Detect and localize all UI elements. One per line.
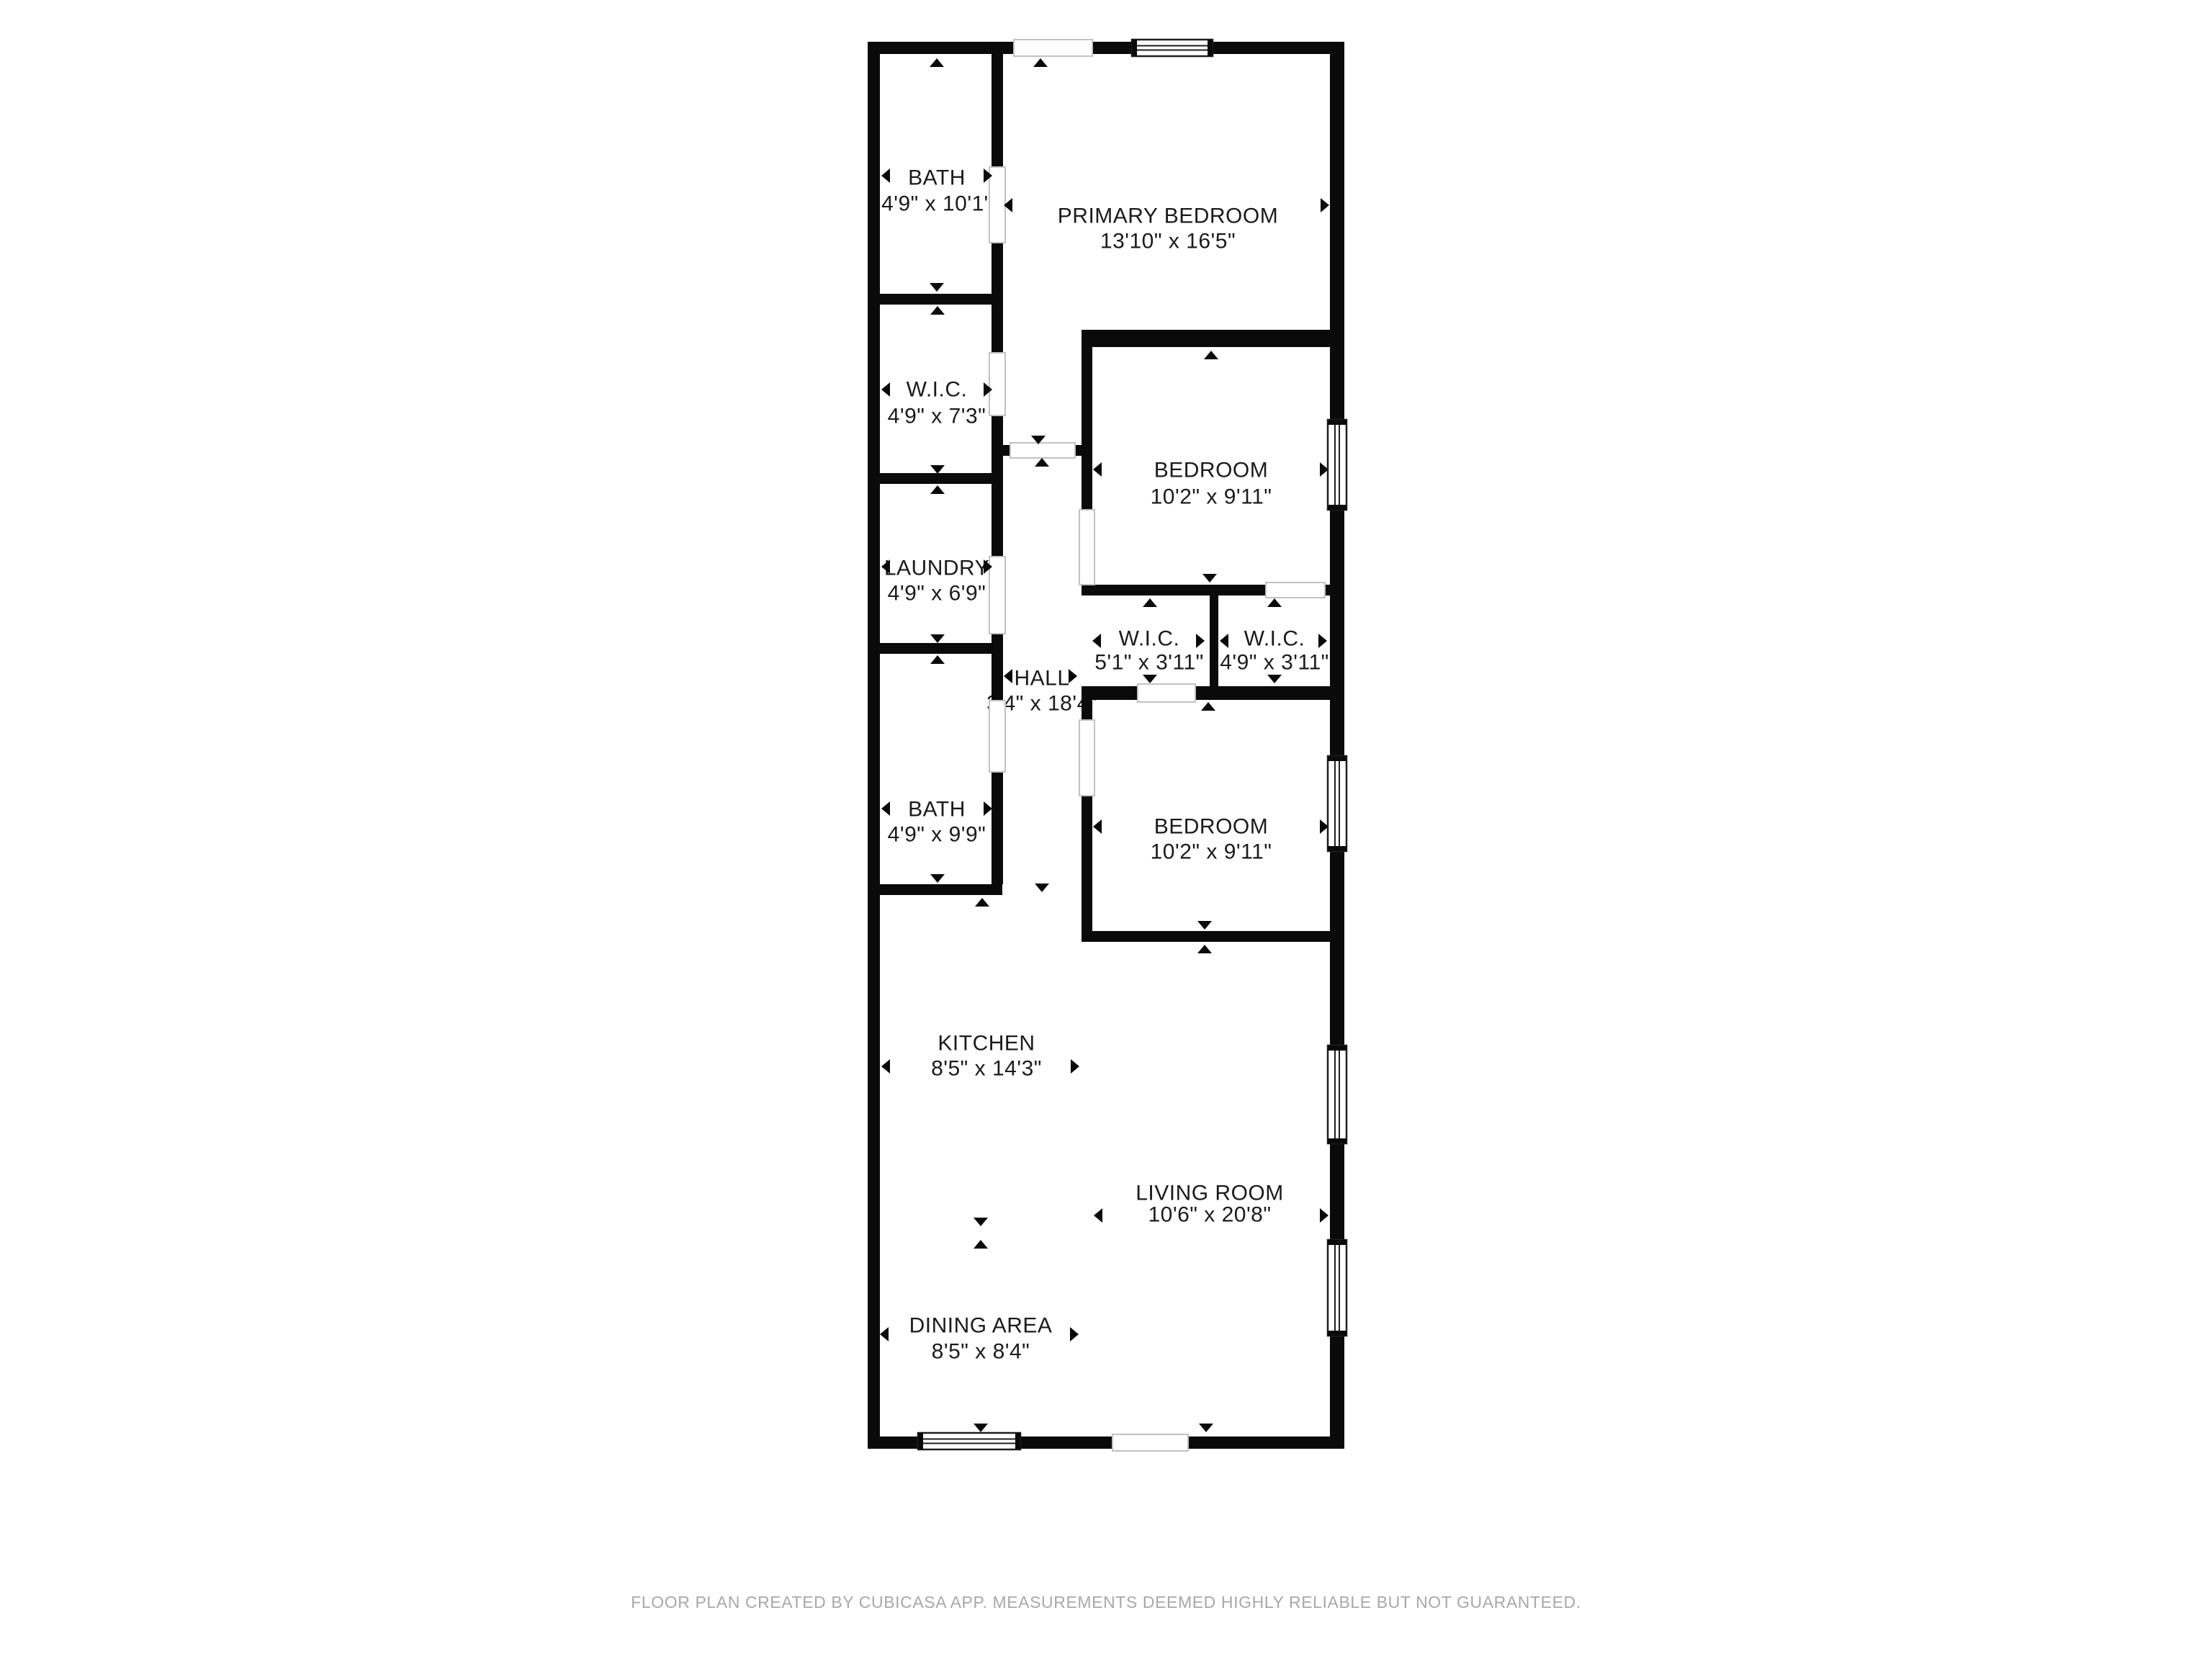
marker-down-icon-hall (1035, 884, 1049, 892)
window-living-upper-cap (1328, 1138, 1346, 1143)
marker-up-icon-wic-1 (930, 306, 945, 315)
room-dimensions-bedroom-1: 10'2" x 9'11" (1151, 485, 1272, 509)
marker-up-icon-bedroom-2 (1201, 702, 1215, 711)
marker-right-icon-dining-area (1070, 1327, 1079, 1341)
room-dimensions-primary-bedroom: 13'10" x 16'5" (1100, 230, 1236, 253)
door-opening-bath2-door (989, 701, 1005, 772)
room-label-wic-1: W.I.C. (907, 378, 968, 402)
window-living-upper-frame (1328, 1046, 1346, 1143)
marker-up-icon-dining-area (974, 1240, 988, 1249)
window-bottom-cap (918, 1433, 923, 1449)
window-bedroom1-cap (1328, 420, 1346, 425)
marker-right-icon-living-room (1320, 1208, 1328, 1223)
marker-left-icon-wic-right (1220, 634, 1228, 648)
door-opening-entry-top (1014, 40, 1092, 56)
window-bedroom2-frame (1328, 756, 1346, 851)
room-label-bedroom-1: BEDROOM (1154, 459, 1269, 482)
room-label-bedroom-2: BEDROOM (1154, 815, 1269, 839)
window-bottom (918, 1433, 1020, 1449)
floor-plan-page: BATH4'9" x 10'1"PRIMARY BEDROOM13'10" x … (0, 0, 2212, 1659)
wall-bath2-south (880, 884, 1002, 895)
window-bedroom1-frame (1328, 420, 1346, 510)
marker-down-icon-bedroom-2 (1197, 921, 1212, 930)
wall-primary-south (1082, 330, 1344, 347)
window-living-upper (1328, 1046, 1346, 1143)
door-opening-entry-bottom (1112, 1434, 1188, 1451)
wall-wic-divider (1210, 595, 1218, 686)
marker-up-icon-wic-right (1267, 598, 1282, 607)
wall-bedroom1-west (1082, 347, 1092, 510)
marker-left-icon-wic-mid (1092, 634, 1101, 648)
room-dimensions-kitchen: 8'5" x 14'3" (931, 1057, 1042, 1081)
window-top-cap (1132, 40, 1137, 56)
marker-down-icon-bath-1 (930, 283, 944, 292)
wall-outer-right (1330, 42, 1344, 1449)
room-dimensions-wic-right: 4'9" x 3'11" (1220, 651, 1329, 675)
marker-down-icon-bedroom-1 (1202, 574, 1217, 583)
window-living-lower-frame (1328, 1240, 1346, 1336)
marker-down-icon-kitchen (974, 1218, 988, 1226)
window-living-lower-cap (1328, 1240, 1346, 1245)
marker-down-icon-wic-right (1267, 675, 1282, 683)
wall-wic-south (1082, 686, 1344, 700)
marker-up-icon-bath-2 (930, 655, 945, 664)
room-label-living-room: LIVING ROOM (1136, 1182, 1284, 1205)
room-label-wic-mid: W.I.C. (1119, 627, 1180, 651)
marker-left-icon-bedroom-2 (1093, 819, 1102, 834)
window-bedroom1 (1328, 420, 1346, 510)
marker-down-icon-bath-2 (930, 874, 945, 883)
marker-down-icon-dining-area (974, 1424, 988, 1432)
footer-disclaimer: FLOOR PLAN CREATED BY CUBICASA APP. MEAS… (0, 1593, 2212, 1612)
floor-plan-drawing: BATH4'9" x 10'1"PRIMARY BEDROOM13'10" x … (0, 0, 2212, 1659)
marker-down-icon-wic-1 (930, 465, 945, 474)
window-bottom-cap (1015, 1433, 1020, 1449)
room-label-wic-right: W.I.C. (1244, 627, 1305, 651)
door-opening-bedroom1-door (1079, 510, 1094, 585)
window-bedroom2-cap (1328, 846, 1346, 851)
marker-left-icon-bedroom-1 (1093, 462, 1102, 477)
door-opening-bath1-door (989, 167, 1005, 243)
room-label-primary-bedroom: PRIMARY BEDROOM (1058, 204, 1278, 228)
room-label-laundry: LAUNDRY (884, 557, 989, 580)
window-top (1132, 40, 1213, 56)
room-dimensions-bedroom-2: 10'2" x 9'11" (1151, 840, 1272, 864)
marker-right-icon-wic-right (1318, 634, 1327, 648)
marker-up-icon-laundry (930, 485, 945, 494)
wall-bedroom2-south (1082, 931, 1344, 942)
marker-left-icon-bath-2 (881, 801, 890, 816)
marker-right-icon-kitchen (1071, 1059, 1079, 1074)
room-label-kitchen: KITCHEN (938, 1032, 1035, 1056)
window-top-frame (1132, 40, 1213, 56)
marker-left-icon-kitchen (881, 1059, 890, 1074)
marker-up-icon-bedroom-1 (1204, 351, 1218, 359)
window-living-upper-cap (1328, 1046, 1346, 1051)
room-dimensions-bath-2: 4'9" x 9'9" (888, 823, 986, 847)
marker-left-icon-living-room (1094, 1208, 1102, 1223)
marker-right-icon-hall (1069, 669, 1077, 683)
window-living-lower-cap (1328, 1331, 1346, 1336)
door-opening-wic-right-door (1266, 583, 1325, 598)
marker-up-icon-kitchen (975, 898, 989, 907)
door-opening-bedroom2-door (1079, 720, 1094, 796)
wall-hall-north-stub-west (1001, 445, 1010, 456)
marker-down-icon-wic-mid (1143, 675, 1157, 683)
marker-up-icon-bath-1 (930, 58, 944, 67)
room-dimensions-bath-1: 4'9" x 10'1" (881, 192, 992, 216)
door-opening-hall-north-door (1010, 443, 1075, 458)
wall-wic1-south (880, 473, 994, 484)
room-dimensions-wic-1: 4'9" x 7'3" (888, 405, 986, 428)
marker-right-icon-primary-bedroom (1321, 198, 1329, 212)
room-label-bath-2: BATH (908, 798, 966, 822)
room-dimensions-wic-mid: 5'1" x 3'11" (1094, 651, 1204, 675)
wall-outer-left (868, 42, 880, 1449)
room-label-dining-area: DINING AREA (909, 1314, 1053, 1338)
room-dimensions-laundry: 4'9" x 6'9" (888, 582, 986, 606)
marker-up-icon-primary-bedroom (1033, 58, 1048, 67)
marker-up-icon-living-room (1197, 945, 1212, 953)
window-living-lower (1328, 1240, 1346, 1336)
room-label-hall: HALL (1014, 667, 1069, 691)
window-bottom-frame (918, 1433, 1020, 1449)
room-dimensions-dining-area: 8'5" x 8'4" (932, 1340, 1030, 1364)
marker-down-icon-laundry (930, 634, 945, 643)
marker-left-icon-hall (1004, 669, 1012, 683)
marker-up-icon-wic-mid (1143, 598, 1157, 607)
window-bedroom2-cap (1328, 756, 1346, 761)
door-opening-wic1-door (989, 353, 1005, 415)
wall-bath1-south (880, 294, 994, 305)
door-opening-wic-mid-door (1138, 684, 1195, 702)
marker-down-icon-living-room (1199, 1424, 1213, 1432)
room-dimensions-living-room: 10'6" x 20'8" (1148, 1203, 1271, 1227)
room-label-bath-1: BATH (908, 166, 966, 190)
marker-left-icon-dining-area (880, 1327, 889, 1341)
marker-left-icon-wic-1 (881, 382, 890, 397)
marker-up-icon-hall (1035, 458, 1049, 467)
window-bedroom2 (1328, 756, 1346, 851)
window-bedroom1-cap (1328, 505, 1346, 510)
wall-outer-top (868, 42, 1344, 54)
marker-left-icon-bath-1 (881, 168, 890, 183)
door-opening-laundry-door (989, 557, 1005, 634)
wall-laundry-south (880, 643, 994, 654)
window-top-cap (1208, 40, 1213, 56)
marker-right-icon-wic-mid (1196, 634, 1205, 648)
marker-right-icon-bath-2 (984, 801, 992, 816)
